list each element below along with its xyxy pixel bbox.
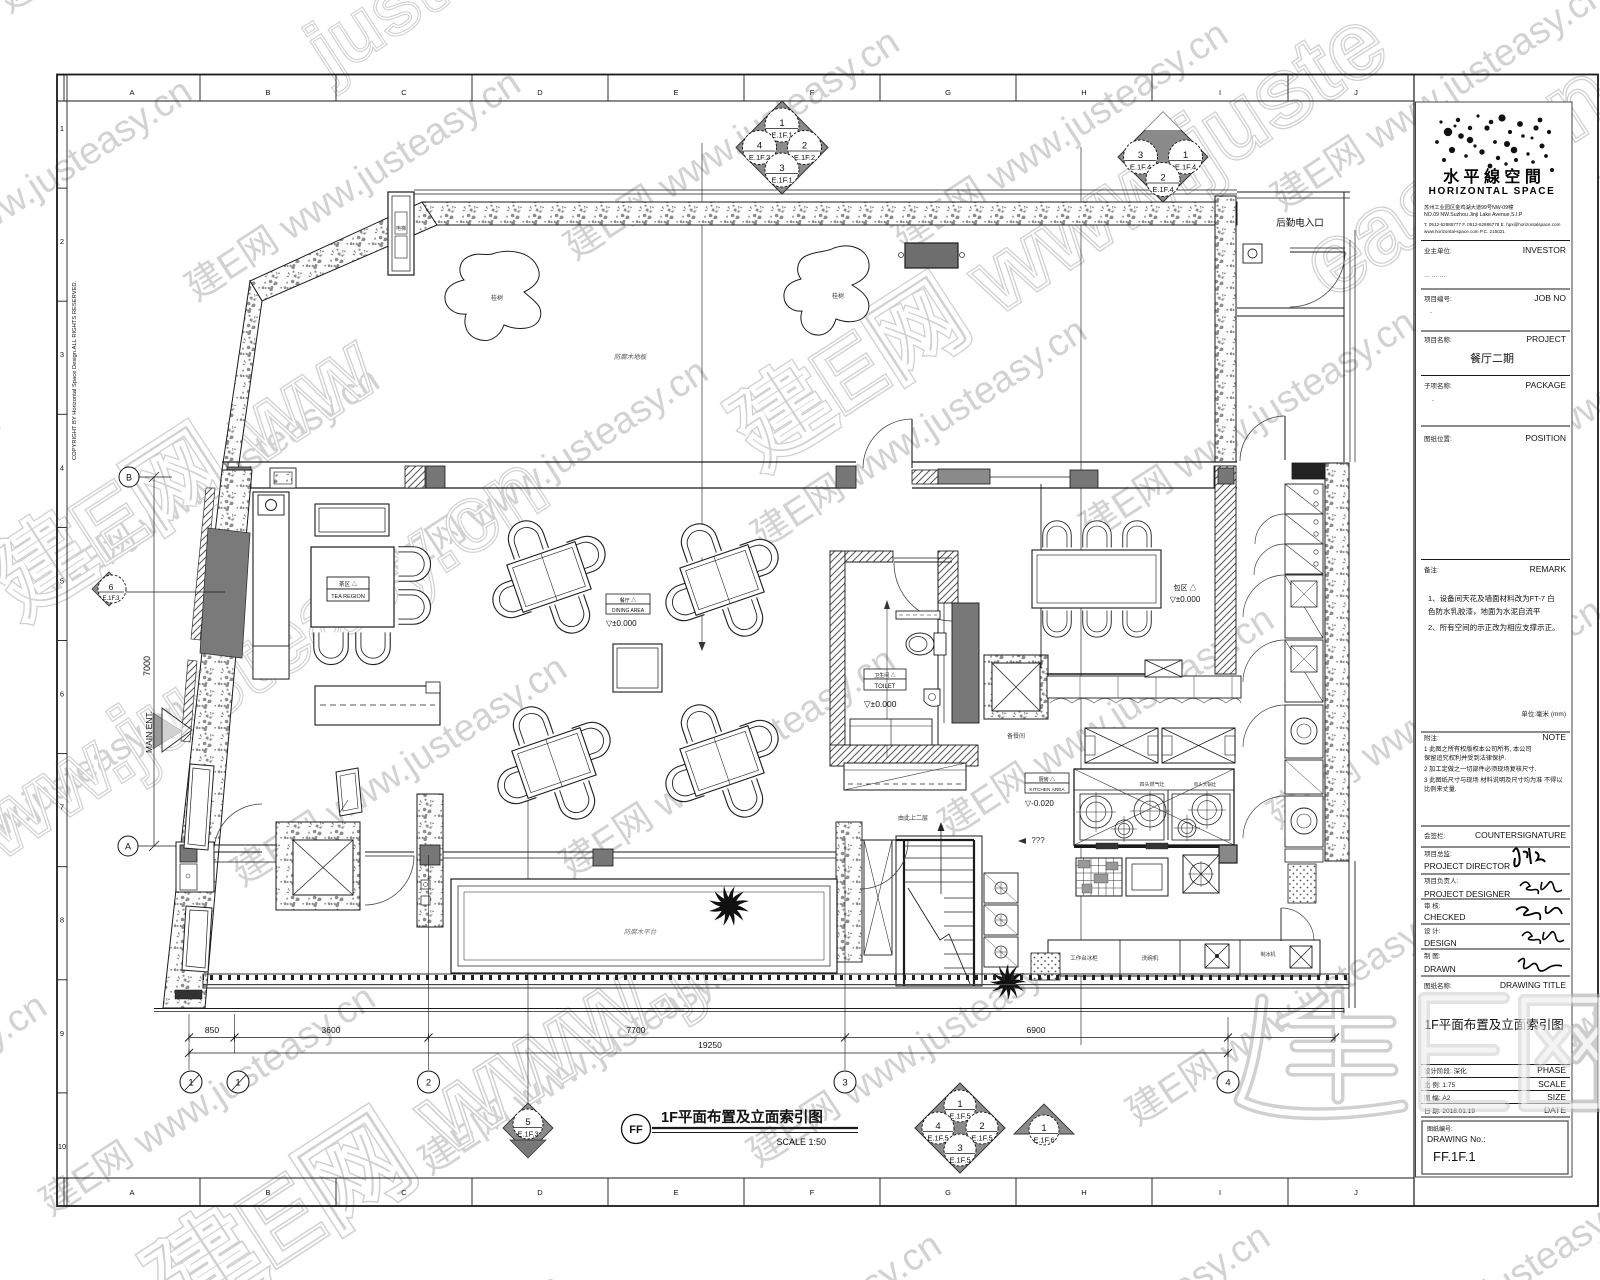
svg-text:5: 5 (525, 1117, 530, 1128)
svg-text:设计阶段: 深化: 设计阶段: 深化 (1424, 1066, 1467, 1075)
svg-text:备餐间: 备餐间 (1007, 732, 1025, 740)
svg-text:1: 1 (1041, 1123, 1046, 1134)
svg-text:E.1F.2: E.1F.2 (794, 153, 815, 162)
svg-text:B: B (126, 473, 132, 483)
svg-text:10: 10 (58, 1142, 66, 1151)
svg-text:2: 2 (60, 237, 64, 246)
svg-text:E.1F.1: E.1F.1 (771, 176, 792, 185)
svg-text:制 图:: 制 图: (1424, 951, 1441, 960)
svg-text:1 此图之所有权版权本公司所有, 本公司: 1 此图之所有权版权本公司所有, 本公司 (1424, 745, 1532, 753)
svg-text:附注:: 附注: (1424, 733, 1439, 742)
svg-text:TEA REGION: TEA REGION (331, 594, 365, 600)
svg-text:T. 0512-62885777 F. 0512-6288: T. 0512-62885777 F. 0512-62885778 E. hpx… (1424, 222, 1561, 227)
svg-text:G: G (945, 88, 951, 97)
svg-text:E.1F.4: E.1F.4 (1175, 163, 1196, 172)
svg-text:图纸位置:: 图纸位置: (1424, 434, 1452, 443)
svg-text:POSITION: POSITION (1525, 433, 1566, 443)
svg-text:E.1F.5: E.1F.5 (949, 1156, 970, 1165)
svg-text:1、设备间天花及墙面材料改为FT-7 白: 1、设备间天花及墙面材料改为FT-7 白 (1428, 593, 1555, 603)
svg-text:备注:: 备注: (1424, 565, 1439, 574)
svg-text:5: 5 (60, 576, 64, 585)
svg-text:H: H (1081, 88, 1086, 97)
svg-text:FF: FF (629, 1124, 643, 1136)
svg-text:SCALE: SCALE (1538, 1079, 1566, 1089)
svg-text:餐厅二期: 餐厅二期 (1470, 351, 1514, 365)
svg-text:8: 8 (60, 916, 64, 925)
svg-text:A: A (125, 842, 131, 852)
svg-text:… … …: … … … (1424, 273, 1445, 279)
svg-text:REMARK: REMARK (1530, 564, 1567, 574)
svg-text:D: D (537, 88, 543, 97)
svg-text:单位:毫米 (mm): 单位:毫米 (mm) (1521, 709, 1566, 718)
svg-text:C: C (401, 1188, 407, 1197)
svg-text:餐厅 △: 餐厅 △ (620, 597, 636, 604)
svg-text:保留追究权利并受到法律保护.: 保留追究权利并受到法律保护. (1424, 754, 1506, 762)
svg-text:后勤电入口: 后勤电入口 (1276, 217, 1324, 229)
svg-text:厨房 △: 厨房 △ (1039, 776, 1055, 783)
svg-text:E.1F.4: E.1F.4 (1152, 185, 1173, 194)
svg-text:JOB NO: JOB NO (1534, 293, 1566, 303)
svg-text:H: H (1081, 1188, 1086, 1197)
svg-text:项目负责人:: 项目负责人: (1424, 876, 1459, 885)
svg-text:2: 2 (979, 1121, 984, 1132)
svg-text:2 加工定做之一切部件必须现场复核尺寸.: 2 加工定做之一切部件必须现场复核尺寸. (1424, 765, 1536, 773)
svg-text:7000: 7000 (142, 656, 152, 676)
svg-text:图纸名称:: 图纸名称: (1424, 981, 1452, 990)
svg-text:卫生间 △: 卫生间 △ (874, 672, 895, 679)
svg-text:DINING AREA: DINING AREA (612, 608, 645, 614)
svg-text:E: E (673, 88, 678, 97)
svg-text:3: 3 (60, 350, 64, 359)
svg-text:PACKAGE: PACKAGE (1526, 380, 1567, 390)
svg-text:.: . (1430, 308, 1432, 315)
svg-text:6: 6 (109, 582, 114, 592)
svg-text:会签栏:: 会签栏: (1424, 831, 1446, 840)
svg-text:电梯: 电梯 (396, 225, 406, 232)
svg-text:3: 3 (957, 1143, 962, 1154)
svg-text:SCALE 1:50: SCALE 1:50 (776, 1137, 826, 1147)
svg-text:E: E (673, 1188, 678, 1197)
svg-text:项目总监:: 项目总监: (1424, 849, 1452, 858)
svg-text:9: 9 (60, 1029, 64, 1038)
svg-text:6: 6 (60, 690, 64, 699)
svg-text:1: 1 (60, 124, 64, 133)
svg-text:▽-0.020: ▽-0.020 (1025, 799, 1054, 808)
svg-text:▽±0.000: ▽±0.000 (606, 619, 637, 628)
svg-text:MAIN ENT.: MAIN ENT. (144, 711, 154, 753)
svg-text:桂树: 桂树 (832, 292, 844, 300)
svg-text:1: 1 (1183, 150, 1188, 161)
svg-text:▽±0.000: ▽±0.000 (864, 699, 897, 709)
svg-text:DRAWING No.:: DRAWING No.: (1427, 1134, 1486, 1144)
svg-text:比例来丈量.: 比例来丈量. (1424, 785, 1457, 793)
svg-text:6900: 6900 (1027, 1025, 1046, 1035)
svg-text:.: . (1432, 396, 1434, 403)
svg-text:COUNTERSIGNATURE: COUNTERSIGNATURE (1475, 830, 1566, 840)
svg-text:E.1F.3: E.1F.3 (102, 596, 120, 602)
svg-text:www.horizontal-space.com: www.horizontal-space.com P.C. 215021 (1424, 229, 1505, 234)
svg-text:CHECKED: CHECKED (1424, 912, 1466, 922)
svg-text:PROJECT DIRECTOR: PROJECT DIRECTOR (1424, 861, 1510, 871)
svg-text:2: 2 (1160, 173, 1165, 184)
svg-text:E.1F.3: E.1F.3 (517, 1130, 538, 1139)
svg-text:F: F (810, 1188, 815, 1197)
svg-text:PROJECT DESIGNER: PROJECT DESIGNER (1424, 889, 1510, 899)
svg-text:E.1F.5: E.1F.5 (971, 1134, 992, 1143)
svg-text:B: B (265, 1188, 270, 1197)
svg-text:项目名称:: 项目名称: (1424, 335, 1452, 344)
svg-text:苏州工业园区金鸡湖大道99号NW-09幢: 苏州工业园区金鸡湖大道99号NW-09幢 (1424, 203, 1513, 211)
svg-text:INVESTOR: INVESTOR (1523, 245, 1566, 255)
svg-text:DRAWING TITLE: DRAWING TITLE (1500, 980, 1566, 990)
svg-text:I: I (1219, 88, 1221, 97)
svg-text:J: J (1354, 88, 1358, 97)
svg-text:E.1F.6: E.1F.6 (1033, 1136, 1054, 1145)
svg-text:单头大锅灶: 单头大锅灶 (1194, 781, 1217, 788)
svg-text:A: A (129, 1188, 134, 1197)
svg-text:由此上二层: 由此上二层 (898, 814, 928, 822)
svg-text:COPYRIGHT BY Horizontal Space: COPYRIGHT BY Horizontal Space Design.ALL… (72, 280, 78, 460)
svg-text:B: B (265, 88, 270, 97)
svg-text:7: 7 (60, 803, 64, 812)
svg-text:洗碗机: 洗碗机 (1142, 954, 1159, 962)
svg-text:1F平面布置及立面索引图: 1F平面布置及立面索引图 (661, 1108, 823, 1126)
svg-text:E.1F.5: E.1F.5 (949, 1112, 970, 1121)
svg-text:HORIZONTAL SPACE: HORIZONTAL SPACE (1429, 186, 1556, 197)
svg-text:E.1F.2: E.1F.2 (749, 153, 770, 162)
svg-text:NO.09 NW.Suzhou Jinji Lake Ave: NO.09 NW.Suzhou Jinji Lake Avenue,S.I.P (1424, 212, 1523, 218)
svg-text:TOILET: TOILET (875, 684, 896, 690)
svg-text:1: 1 (779, 118, 784, 129)
svg-text:7700: 7700 (627, 1025, 646, 1035)
svg-text:4: 4 (60, 463, 64, 472)
svg-text:水 平 線 空 間: 水 平 線 空 間 (1443, 167, 1541, 186)
svg-text:E.1F.5: E.1F.5 (927, 1134, 948, 1143)
svg-text:G: G (945, 1188, 951, 1197)
svg-text:3: 3 (779, 163, 784, 174)
svg-text:DESIGN: DESIGN (1424, 938, 1457, 948)
svg-text:3: 3 (1138, 150, 1143, 161)
svg-text:F: F (810, 88, 815, 97)
svg-text:图纸编号:: 图纸编号: (1427, 1125, 1453, 1133)
svg-text:子项名称:: 子项名称: (1424, 381, 1452, 390)
svg-text:审 核:: 审 核: (1424, 901, 1441, 910)
svg-text:1: 1 (957, 1099, 962, 1110)
svg-text:4: 4 (935, 1121, 940, 1132)
svg-text:工作台冰柜: 工作台冰柜 (1070, 954, 1098, 962)
svg-text:J: J (1354, 1188, 1358, 1197)
svg-text:I: I (1219, 1188, 1221, 1197)
svg-text:茶区 △: 茶区 △ (339, 580, 358, 588)
svg-text:E.1F.1: E.1F.1 (771, 131, 792, 140)
svg-text:3: 3 (842, 1078, 847, 1089)
svg-text:PROJECT: PROJECT (1526, 334, 1566, 344)
svg-text:防腐木地板: 防腐木地板 (614, 353, 648, 361)
svg-text:FF.1F.1: FF.1F.1 (1433, 1149, 1476, 1164)
svg-text:4: 4 (1225, 1078, 1230, 1089)
svg-text:D: D (537, 1188, 543, 1197)
svg-text:包区 △: 包区 △ (1174, 583, 1197, 592)
svg-text:四头燃气灶: 四头燃气灶 (1139, 781, 1164, 788)
svg-text:▽±0.000: ▽±0.000 (1170, 595, 1201, 604)
svg-text:制冰机: 制冰机 (1260, 951, 1275, 958)
svg-text:E.1F.4: E.1F.4 (1130, 163, 1151, 172)
svg-text:2: 2 (426, 1078, 431, 1089)
svg-text:防腐木平台: 防腐木平台 (624, 928, 657, 936)
svg-text:C: C (401, 88, 407, 97)
svg-text:项目编号:: 项目编号: (1424, 294, 1452, 303)
svg-text:色防水乳胶漆，地面为水泥自流平: 色防水乳胶漆，地面为水泥自流平 (1428, 606, 1541, 616)
svg-text:???: ??? (1031, 836, 1045, 845)
svg-text:3600: 3600 (322, 1025, 341, 1035)
svg-text:桂树: 桂树 (491, 294, 503, 302)
svg-text:2: 2 (802, 141, 807, 152)
svg-text:3 此图纸尺寸与现场 材料说明及尺寸均为准 不得以: 3 此图纸尺寸与现场 材料说明及尺寸均为准 不得以 (1424, 776, 1563, 784)
svg-text:4: 4 (757, 141, 762, 152)
svg-text:DRAWN: DRAWN (1424, 964, 1456, 974)
svg-text:NOTE: NOTE (1542, 732, 1566, 742)
svg-text:2、所有空间的示正改为相应支撑示正。: 2、所有空间的示正改为相应支撑示正。 (1428, 622, 1560, 632)
svg-text:850: 850 (205, 1025, 219, 1035)
svg-text:KITCHEN AREA: KITCHEN AREA (1029, 787, 1065, 793)
svg-text:19250: 19250 (698, 1040, 722, 1050)
svg-text:A: A (129, 88, 134, 97)
svg-text:设 计:: 设 计: (1424, 926, 1441, 935)
svg-text:业主单位:: 业主单位: (1424, 246, 1452, 255)
